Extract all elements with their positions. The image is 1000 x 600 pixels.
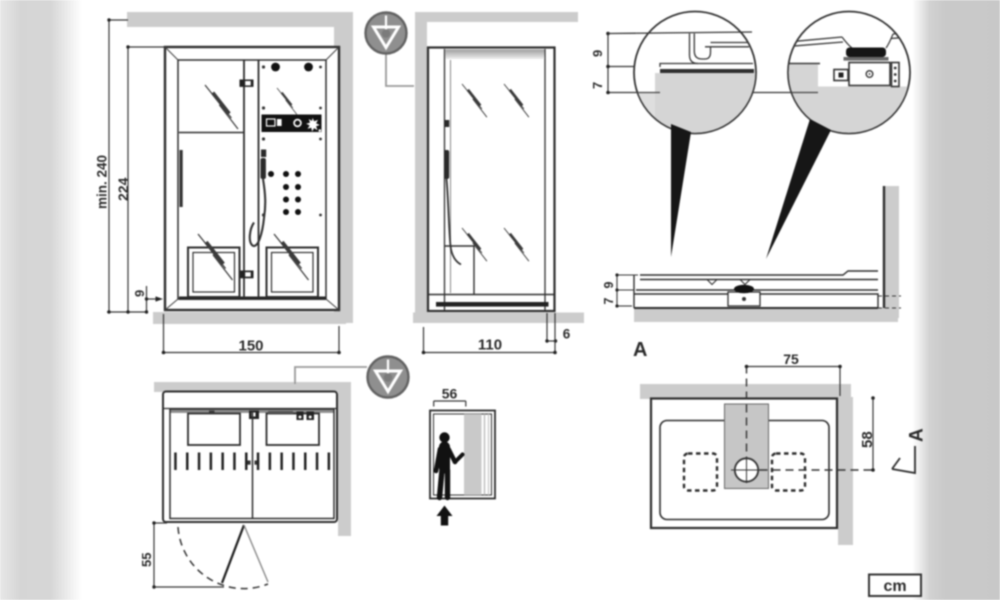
- svg-text:58: 58: [859, 431, 876, 448]
- svg-text:A: A: [907, 428, 928, 442]
- svg-text:9: 9: [602, 282, 616, 289]
- svg-text:7: 7: [590, 82, 605, 89]
- svg-text:A: A: [633, 339, 647, 361]
- svg-text:6: 6: [563, 327, 571, 342]
- svg-text:75: 75: [783, 351, 799, 367]
- svg-text:cm: cm: [883, 578, 906, 595]
- svg-text:9: 9: [590, 50, 605, 57]
- svg-text:55: 55: [139, 553, 154, 567]
- svg-text:224: 224: [115, 177, 131, 201]
- svg-text:150: 150: [238, 338, 263, 355]
- svg-text:110: 110: [478, 337, 502, 354]
- svg-text:7: 7: [602, 298, 616, 305]
- svg-text:min. 240: min. 240: [95, 155, 110, 209]
- svg-text:9: 9: [132, 290, 147, 297]
- svg-text:56: 56: [442, 386, 458, 402]
